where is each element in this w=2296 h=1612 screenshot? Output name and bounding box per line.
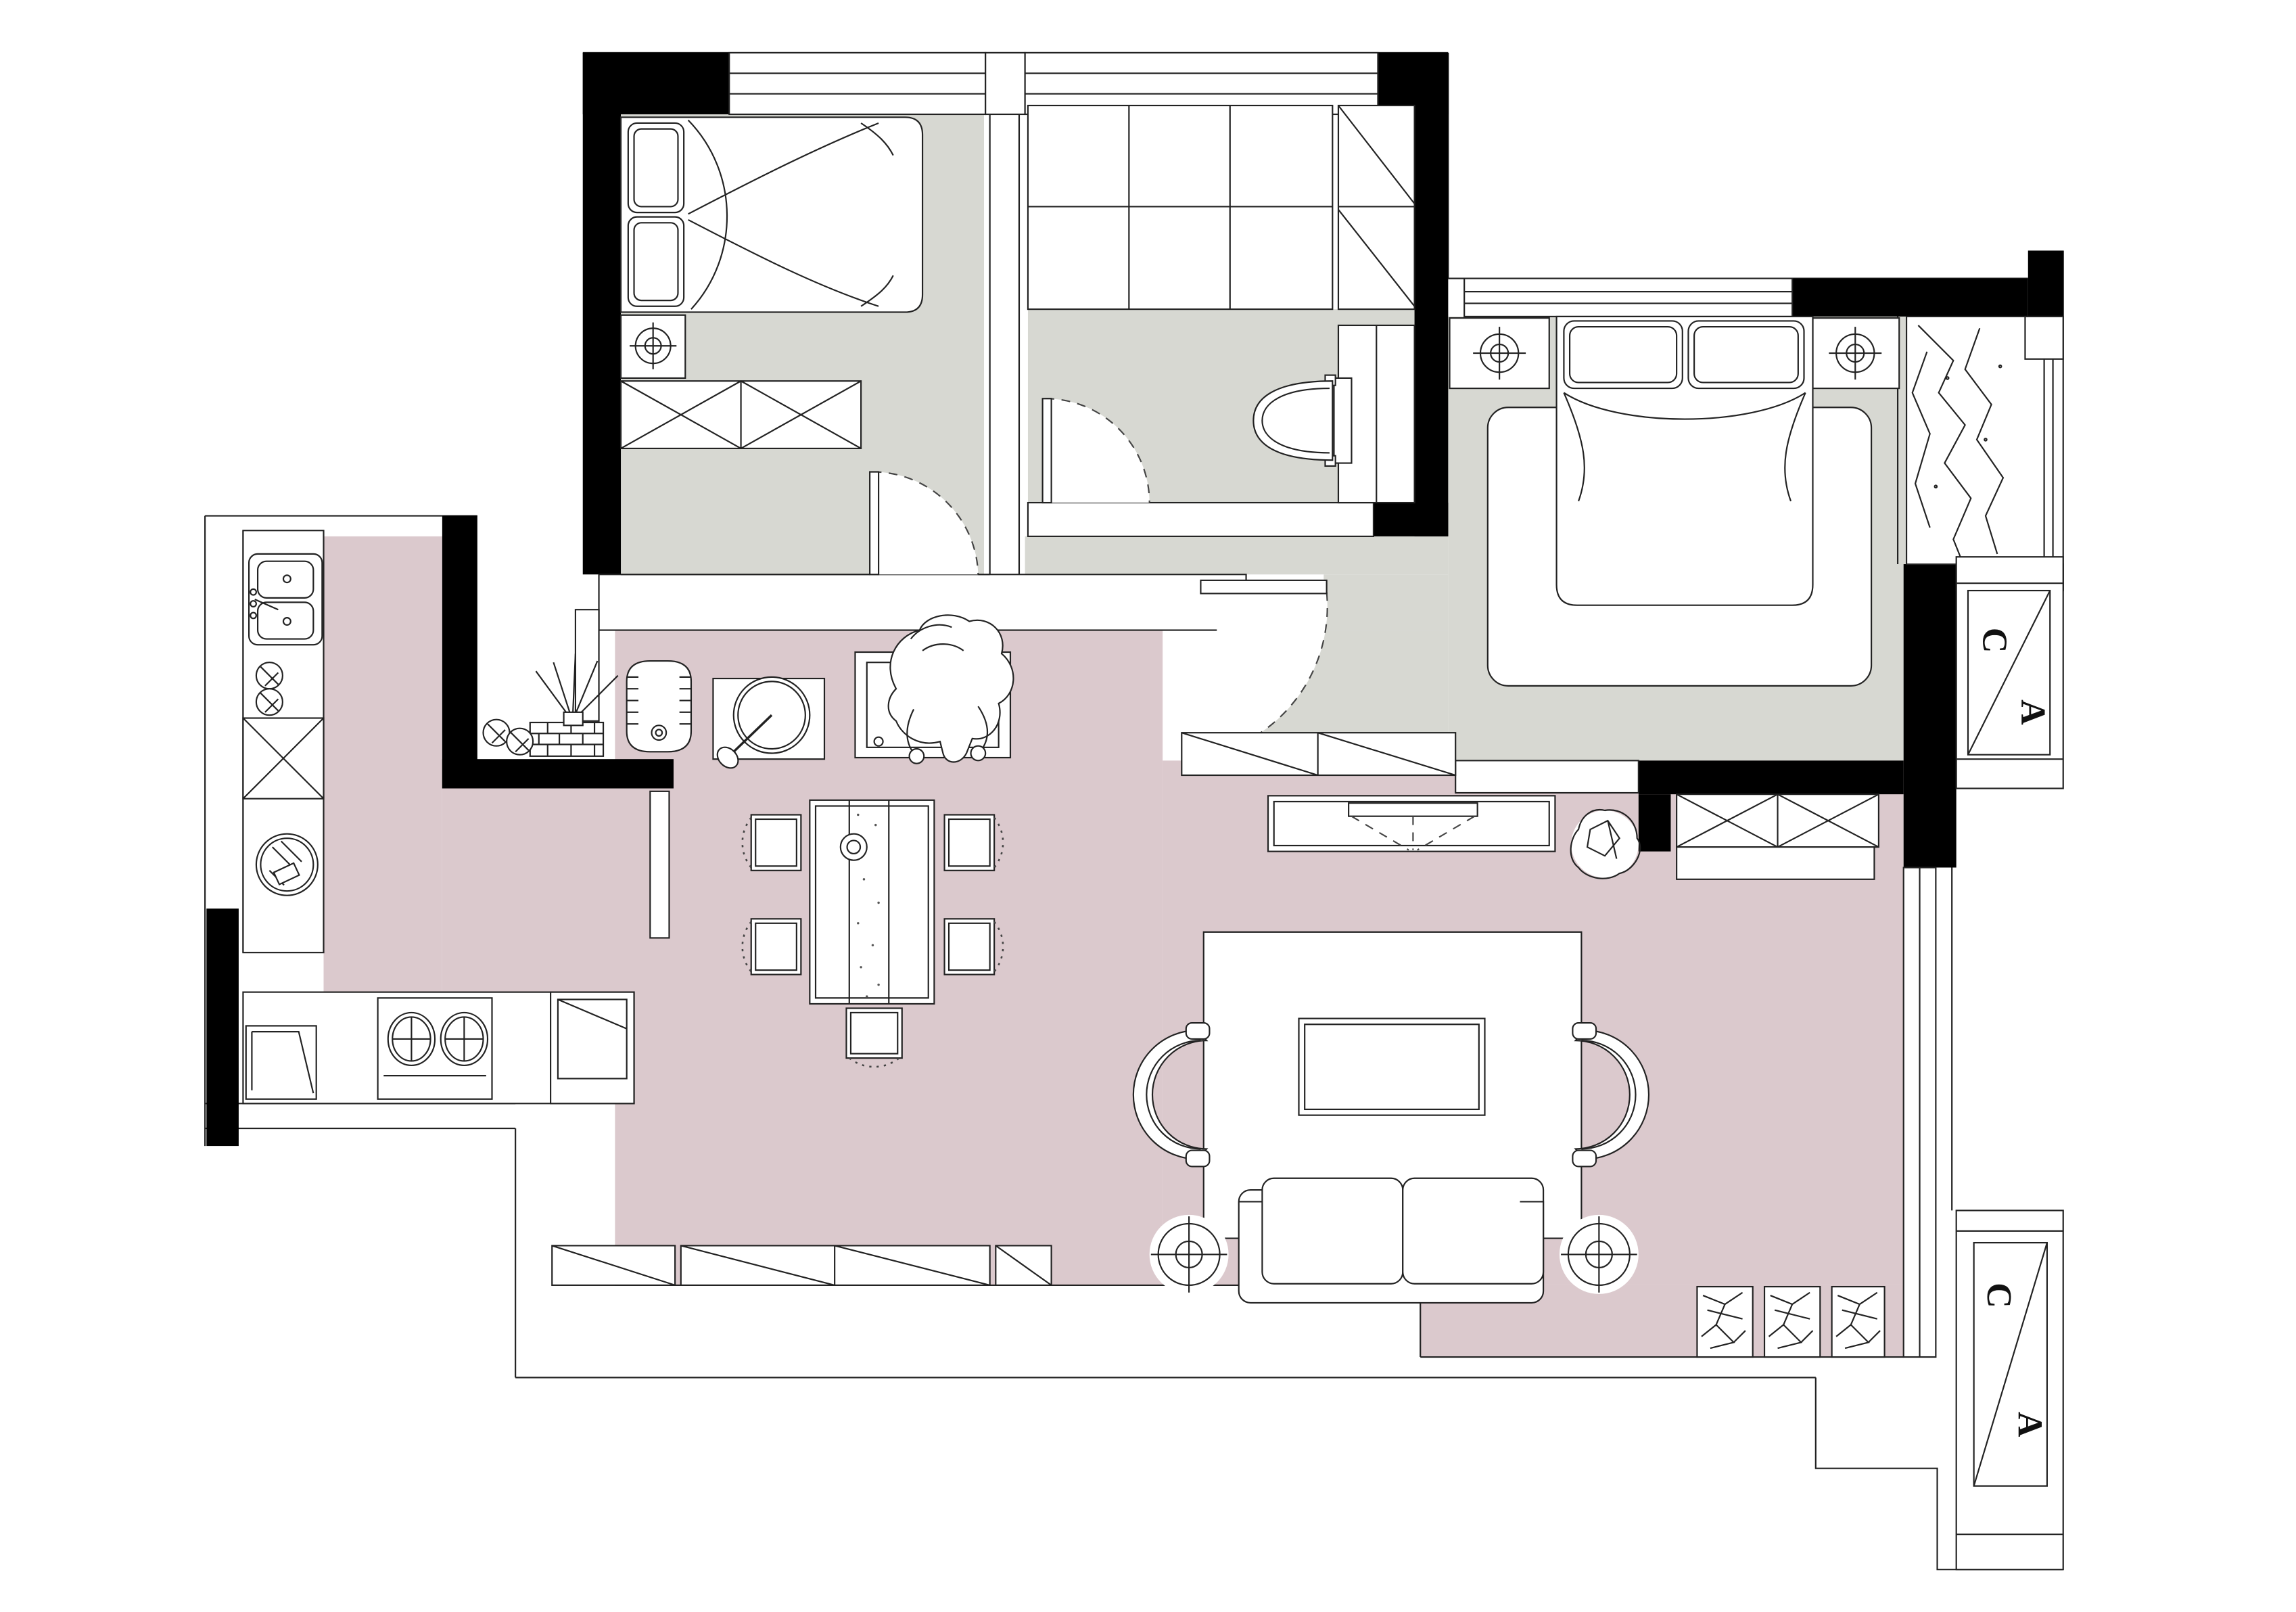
bed-single	[621, 117, 922, 312]
window-marker-lower: C A	[1957, 1210, 2063, 1569]
wall-corner-topright	[2028, 250, 2063, 316]
chair	[846, 1008, 901, 1067]
console-cabinet	[1677, 794, 1879, 879]
wall-bath-master	[1415, 53, 1449, 536]
counter-unit	[243, 718, 323, 799]
door-leaf	[1043, 398, 1052, 503]
nightstand	[1450, 318, 1549, 388]
washing-machine	[256, 834, 318, 896]
balcony	[1906, 317, 2063, 591]
wall-master-bottom	[1639, 760, 1904, 794]
tv-console	[1268, 796, 1555, 851]
chair	[743, 814, 801, 870]
wardrobe-grid	[1028, 106, 1332, 309]
wall-band-master-door	[1455, 760, 1639, 793]
wall-pier	[985, 53, 1025, 114]
coffee-table	[1299, 1019, 1485, 1115]
wall-master-top	[1792, 279, 2028, 317]
sofa	[1239, 1178, 1543, 1303]
wall-band-bathroom-bottom	[1028, 503, 1374, 536]
balcony-sill	[2025, 317, 2063, 359]
chair	[945, 919, 1004, 974]
wall-entry-vertical	[442, 516, 477, 789]
closet-cabinet	[1338, 106, 1415, 309]
balcony-window	[2044, 359, 2053, 564]
kitchen-sink	[249, 554, 322, 645]
stone-texture	[1913, 325, 2003, 561]
wall-bath-stub	[1374, 503, 1448, 536]
floor-plan-canvas: C A C A	[0, 0, 2296, 1612]
planter	[1764, 1287, 1820, 1357]
wall-band-dining-top	[599, 574, 1246, 630]
marker-letter-a: A	[2011, 1412, 2049, 1437]
master-bedroom	[1450, 317, 1900, 686]
window-master-top	[1464, 279, 1792, 317]
sofa-cushion	[1262, 1178, 1403, 1284]
wall-bedroom2-left	[583, 53, 621, 574]
planters	[1697, 1287, 1884, 1357]
bed-double	[1557, 317, 1813, 605]
wall-kitchen-left	[206, 908, 239, 1146]
marker-letter-c: C	[1975, 628, 2014, 653]
tv	[1349, 803, 1478, 816]
nightstand	[621, 315, 685, 378]
chair	[743, 919, 801, 974]
door-leaf	[870, 472, 878, 575]
chair	[945, 814, 1004, 870]
low-shelf-row	[552, 1245, 1051, 1285]
window-marker-upper: C A	[1957, 557, 2063, 788]
wall-stub-dining	[650, 791, 669, 938]
wall-master-bottom-stub	[1639, 794, 1671, 851]
planter	[1832, 1287, 1885, 1357]
wall-entry-horizontal	[442, 759, 674, 788]
stove	[378, 998, 492, 1099]
brick-planter	[530, 722, 603, 756]
planter	[1697, 1287, 1752, 1357]
corner-cabinet	[246, 1026, 317, 1099]
kitchen-floor	[324, 536, 442, 992]
window-living-right	[1904, 867, 1936, 1357]
console-shelf	[1677, 847, 1874, 879]
decor-bench	[627, 661, 691, 752]
hallway-floor	[1025, 536, 1449, 574]
marker-letter-a: A	[2013, 699, 2052, 725]
table-bowl	[841, 834, 867, 860]
window-bedroom2-top	[729, 53, 985, 114]
dining-table	[810, 800, 934, 1004]
dresser	[621, 381, 861, 448]
side-table	[1560, 1215, 1639, 1294]
hallway-floor	[1323, 574, 1448, 630]
base-cabinet	[550, 992, 634, 1104]
sofa-cushion	[1403, 1178, 1543, 1284]
nightstand	[1812, 318, 1899, 388]
floor-plan: C A C A	[0, 0, 2296, 1612]
round-basin-table	[713, 677, 824, 773]
side-table	[1150, 1215, 1229, 1294]
door-leaf	[1200, 580, 1326, 593]
marker-letter-c: C	[1979, 1283, 2018, 1308]
sliding-wardrobe	[1181, 733, 1455, 775]
wall-right-mid	[1904, 564, 1957, 867]
decor-pots	[484, 720, 534, 755]
walk-in-closet	[1028, 106, 1415, 309]
